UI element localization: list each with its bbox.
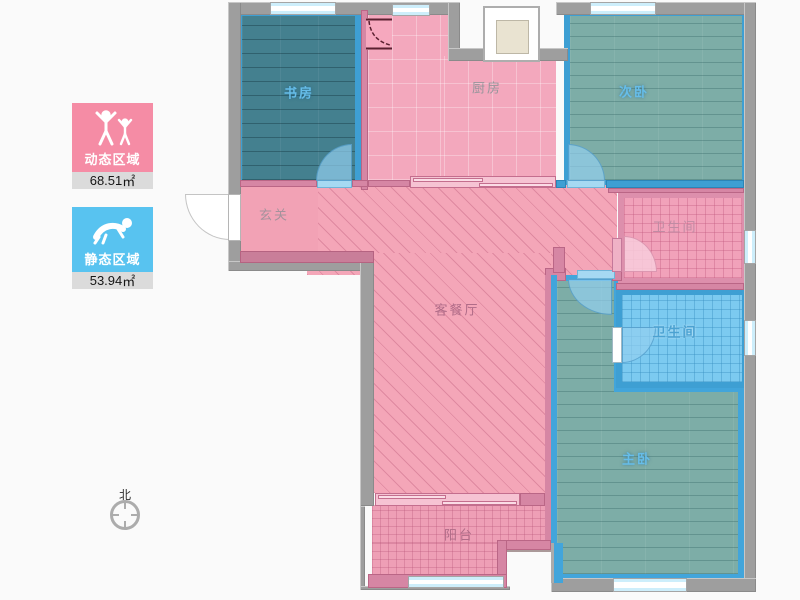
window-master-bedroom — [613, 578, 687, 592]
label-living-dining: 客餐厅 — [434, 304, 479, 317]
legend-static-color-box: 静态区域 — [72, 207, 153, 272]
wall — [240, 180, 317, 187]
compass-tick-e — [131, 514, 138, 516]
wall — [352, 180, 368, 187]
wall — [360, 261, 374, 506]
legend-dynamic-color-box: 动态区域 — [72, 103, 153, 172]
wall — [556, 2, 756, 15]
wall — [551, 543, 563, 583]
label-balcony: 阳台 — [444, 529, 474, 542]
label-hallway: 玄关 — [259, 209, 289, 222]
wall — [520, 493, 545, 506]
label-master-bedroom: 主卧 — [622, 453, 652, 466]
compass-tick-s — [124, 521, 126, 528]
legend-dynamic-label: 动态区域 — [84, 153, 140, 172]
door-leaf-second-bedroom — [567, 180, 605, 188]
wall — [368, 180, 410, 187]
wall-stub — [553, 247, 565, 273]
label-study: 书房 — [284, 87, 314, 100]
wall — [744, 2, 756, 592]
wall — [606, 180, 744, 188]
label-second-bedroom: 次卧 — [619, 86, 649, 99]
wall — [616, 283, 744, 290]
dynamic-area-icon — [72, 103, 153, 153]
wall — [360, 506, 365, 590]
label-bathroom-2: 卫生间 — [652, 326, 697, 339]
door-leaf-study — [317, 180, 352, 188]
floorplan-page: { "legend": { "dynamic": {"label": "动态区域… — [0, 0, 800, 600]
window-kitchen — [392, 4, 430, 16]
sliding-door-balcony — [375, 493, 520, 506]
legend-static-card: 静态区域 53.94㎡ — [72, 207, 153, 289]
door-leaf-bathroom-2 — [612, 327, 622, 363]
door-leaf-entrance — [228, 194, 241, 241]
flue-shaft — [483, 6, 540, 62]
wall — [556, 180, 566, 188]
sliding-door-kitchen — [410, 176, 556, 188]
legend-static-label: 静态区域 — [84, 253, 140, 272]
room-living-dining-lower[interactable] — [374, 253, 551, 493]
door-arc-entrance — [185, 194, 230, 240]
window-bathroom-1 — [744, 230, 756, 264]
legend-static-value: 53.94㎡ — [72, 272, 153, 289]
label-bathroom-1: 卫生间 — [652, 221, 697, 234]
compass-tick-n — [124, 502, 126, 509]
legend-dynamic-card: 动态区域 68.51㎡ — [72, 103, 153, 189]
window-second-bedroom — [590, 2, 656, 15]
window-balcony — [408, 576, 504, 588]
legend-dynamic-value: 68.51㎡ — [72, 172, 153, 189]
window-bathroom-2 — [744, 320, 756, 356]
room-kitchen-extension[interactable] — [444, 56, 556, 180]
flue-shaft-inner — [496, 20, 529, 54]
room-master-bedroom[interactable] — [557, 392, 738, 574]
door-leaf-suite — [577, 270, 615, 279]
door-leaf-bathroom-1 — [612, 238, 622, 272]
label-kitchen: 厨房 — [472, 82, 502, 95]
compass-tick-w — [112, 514, 119, 516]
duct-symbol — [366, 18, 392, 50]
room-balcony-lower[interactable] — [372, 543, 497, 576]
wall — [545, 275, 557, 543]
wall — [240, 251, 374, 263]
static-area-icon — [72, 207, 153, 253]
wall — [608, 188, 744, 193]
window-study — [270, 2, 336, 15]
